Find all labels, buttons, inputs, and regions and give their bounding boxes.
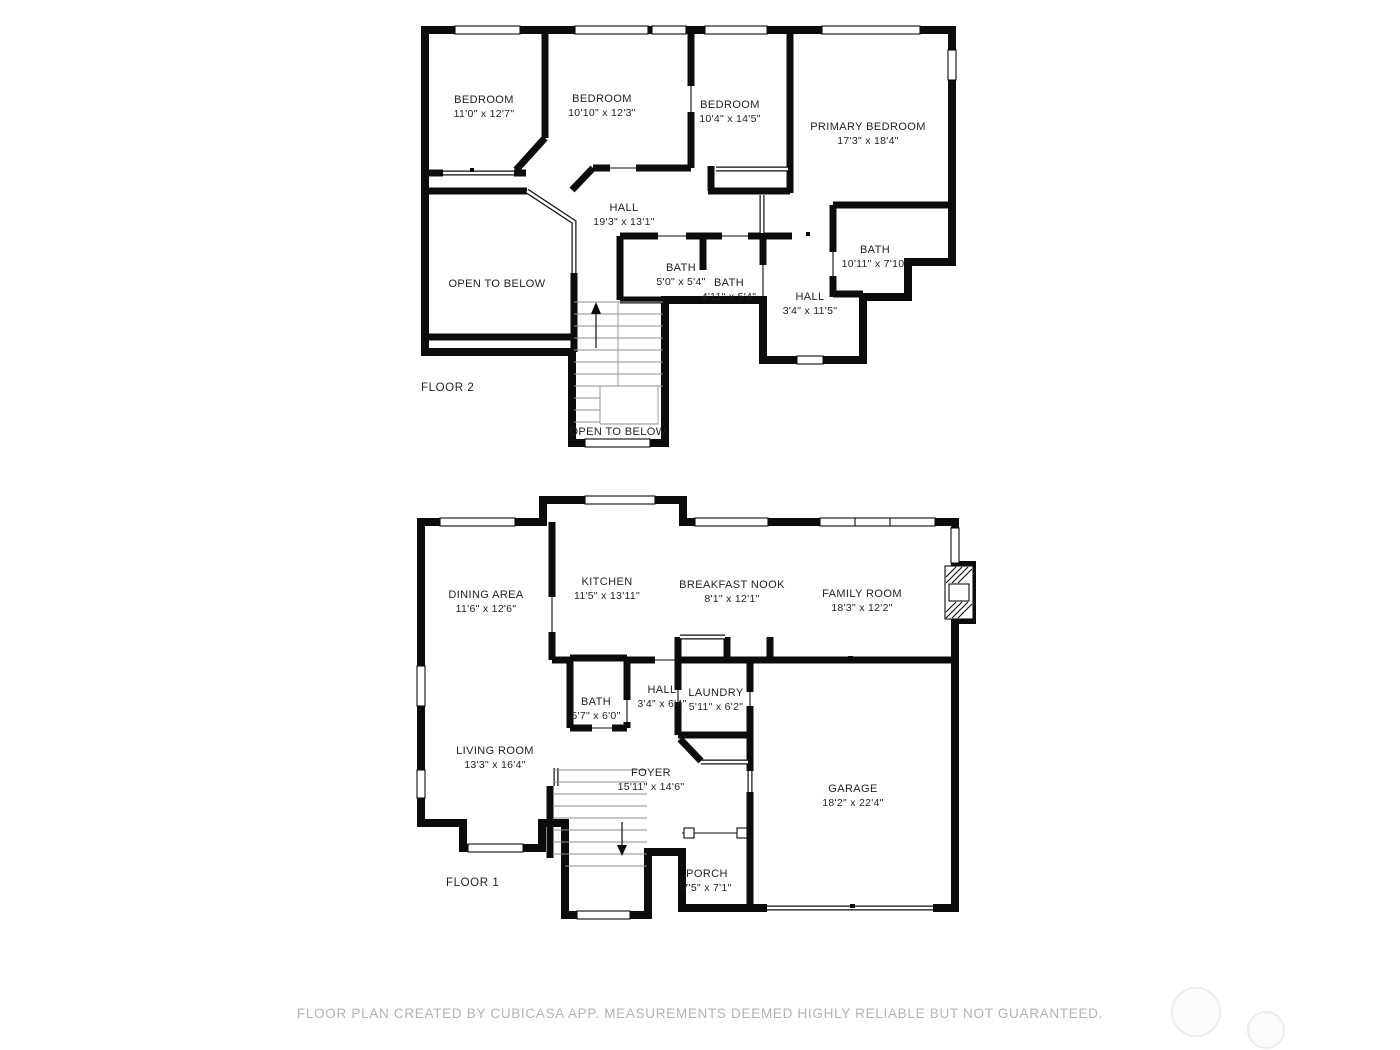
floorplan-image: BEDROOM 11'0" x 12'7" BEDROOM 10'10" x 1… <box>0 0 1400 1050</box>
window <box>585 439 650 447</box>
window <box>951 528 959 563</box>
window <box>455 26 520 34</box>
door-tick <box>806 232 810 236</box>
room-dims-hall: 3'4" x 6'4" <box>637 698 686 710</box>
room-dims-hall-2: 3'4" x 11'5" <box>783 305 838 317</box>
room-label-hall-2: HALL <box>795 291 824 303</box>
fireplace <box>945 566 973 619</box>
room-dims-primary-bedroom: 17'3" x 18'4" <box>837 135 899 147</box>
room-label-foyer: FOYER <box>631 767 671 779</box>
window <box>417 770 425 798</box>
room-label-open-to-below-stairs: OPEN TO BELOW <box>569 426 666 438</box>
floor2-plan: BEDROOM 11'0" x 12'7" BEDROOM 10'10" x 1… <box>421 26 956 447</box>
room-label-garage: GARAGE <box>828 783 877 795</box>
room-label-bath-3: BATH <box>860 244 890 256</box>
room-dims-living-room: 13'3" x 16'4" <box>464 759 526 771</box>
window <box>577 911 630 919</box>
room-dims-breakfast-nook: 8'1" x 12'1" <box>704 593 759 605</box>
room-dims-garage: 18'2" x 22'4" <box>822 797 884 809</box>
room-label-bedroom-3: BEDROOM <box>700 99 760 111</box>
room-dims-laundry: 5'11" x 6'2" <box>689 701 744 713</box>
room-dims-bath: 5'7" x 6'0" <box>571 710 620 722</box>
door-tick <box>848 656 853 660</box>
porch-post <box>684 828 694 838</box>
watermark-circle-small <box>1248 1012 1284 1048</box>
door-tick <box>470 168 474 172</box>
room-label-bath-1: BATH <box>666 262 696 274</box>
room-label-living-room: LIVING ROOM <box>456 745 534 757</box>
room-label-laundry: LAUNDRY <box>688 687 743 699</box>
room-dims-bedroom-3: 10'4" x 14'5" <box>699 113 761 125</box>
door-tick <box>850 904 855 908</box>
room-label-hall: HALL <box>647 684 676 696</box>
room-label-hall-upper: HALL <box>609 202 638 214</box>
window <box>822 26 920 34</box>
room-label-kitchen: KITCHEN <box>581 576 632 588</box>
window <box>440 518 515 526</box>
room-dims-bath-1: 5'0" x 5'4" <box>656 276 705 288</box>
room-label-bath: BATH <box>581 696 611 708</box>
room-label-bedroom-1: BEDROOM <box>454 94 514 106</box>
room-label-dining-area: DINING AREA <box>448 589 524 601</box>
room-label-primary-bedroom: PRIMARY BEDROOM <box>810 121 926 133</box>
room-dims-foyer: 15'11" x 14'6" <box>618 781 685 793</box>
window <box>948 50 956 80</box>
window <box>468 844 523 852</box>
room-dims-porch: 7'5" x 7'1" <box>682 882 731 894</box>
room-label-family-room: FAMILY ROOM <box>822 588 902 600</box>
porch-post <box>737 828 747 838</box>
room-label-bath-2: BATH <box>714 277 744 289</box>
window <box>417 666 425 706</box>
watermark-circle-large <box>1172 988 1220 1036</box>
floorplan-page: BEDROOM 11'0" x 12'7" BEDROOM 10'10" x 1… <box>0 0 1400 1050</box>
window <box>705 26 767 34</box>
disclaimer-text: FLOOR PLAN CREATED BY CUBICASA APP. MEAS… <box>297 1006 1103 1021</box>
room-dims-hall-upper: 19'3" x 13'1" <box>593 216 655 228</box>
room-dims-bedroom-1: 11'0" x 12'7" <box>454 108 515 120</box>
window <box>585 496 655 504</box>
room-dims-dining-area: 11'6" x 12'6" <box>456 603 517 615</box>
floor1-plan: DINING AREA 11'6" x 12'6" KITCHEN 11'5" … <box>417 496 973 919</box>
window <box>652 26 686 34</box>
window <box>695 518 768 526</box>
window <box>797 356 823 364</box>
room-dims-kitchen: 11'5" x 13'11" <box>574 590 640 602</box>
fireplace-firebox <box>949 584 969 601</box>
window <box>820 518 935 526</box>
room-dims-bedroom-2: 10'10" x 12'3" <box>568 107 636 119</box>
window <box>575 26 648 34</box>
room-label-breakfast-nook: BREAKFAST NOOK <box>679 579 785 591</box>
watermark <box>1172 988 1284 1048</box>
floor2-title: FLOOR 2 <box>421 382 474 394</box>
room-label-open-to-below: OPEN TO BELOW <box>448 278 545 290</box>
room-dims-bath-2: 4'11" x 5'4" <box>702 291 757 303</box>
room-label-bedroom-2: BEDROOM <box>572 93 632 105</box>
room-dims-family-room: 18'3" x 12'2" <box>831 602 893 614</box>
room-dims-bath-3: 10'11" x 7'10" <box>842 258 909 270</box>
floor1-title: FLOOR 1 <box>446 877 499 889</box>
room-label-porch: PORCH <box>686 868 728 880</box>
